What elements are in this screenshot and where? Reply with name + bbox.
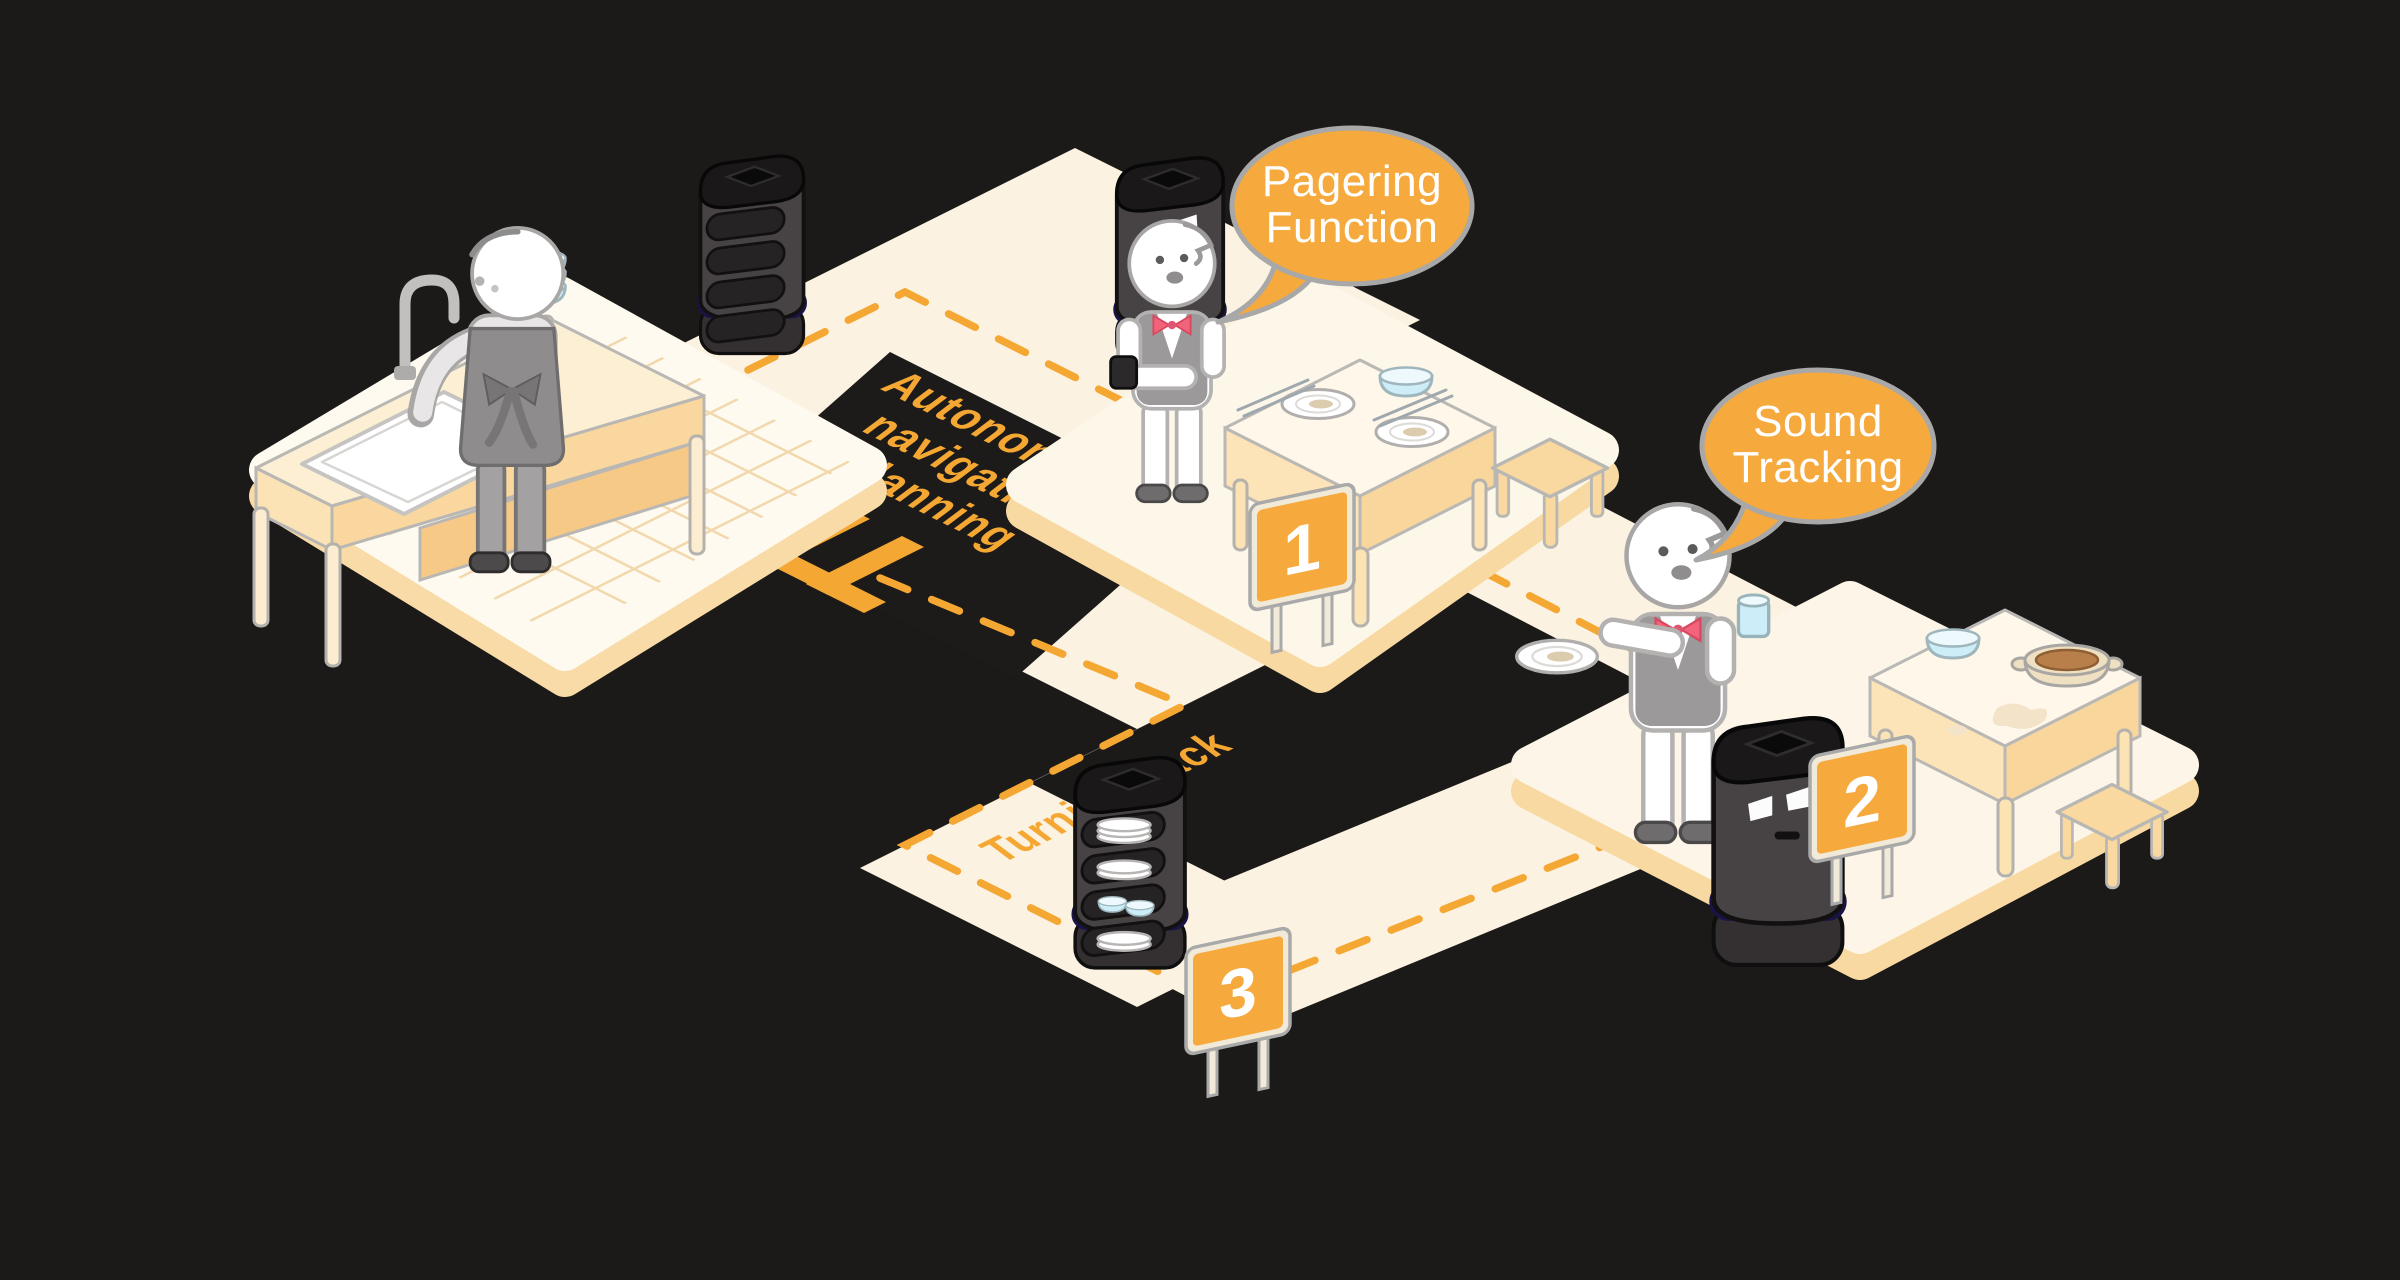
served-plate xyxy=(1517,640,1598,672)
sound-bubble-line1: Sound xyxy=(1753,397,1883,446)
faucet-base xyxy=(394,366,416,380)
person-shoe xyxy=(470,553,508,572)
serving-robot-returning-loaded xyxy=(1073,758,1187,968)
soup xyxy=(2036,650,2098,670)
person-cheek xyxy=(491,285,499,293)
sign-3-number: 3 xyxy=(1219,951,1257,1035)
table-leg xyxy=(690,436,704,554)
sign-2-number: 2 xyxy=(1843,759,1881,843)
table-leg xyxy=(326,544,340,666)
pager-device xyxy=(1111,357,1137,389)
person-ear xyxy=(475,276,485,286)
person-shoe xyxy=(512,553,550,572)
serving-robot-empty-shelves xyxy=(699,156,806,353)
pagering-bubble-line2: Function xyxy=(1266,203,1439,252)
cup-of-water xyxy=(1738,595,1768,636)
sound-bubble-line2: Tracking xyxy=(1732,443,1903,492)
spill-drop xyxy=(1947,725,1967,735)
restaurant-delivery-robot-scene: Autonomous navigation planning Turning b… xyxy=(0,0,2400,1280)
waiter-arm xyxy=(1707,618,1734,683)
pagering-bubble-line1: Pagering xyxy=(1262,157,1442,206)
sign-1-number: 1 xyxy=(1283,507,1321,591)
waiter-arm xyxy=(1202,319,1224,377)
table-leg xyxy=(254,508,268,626)
